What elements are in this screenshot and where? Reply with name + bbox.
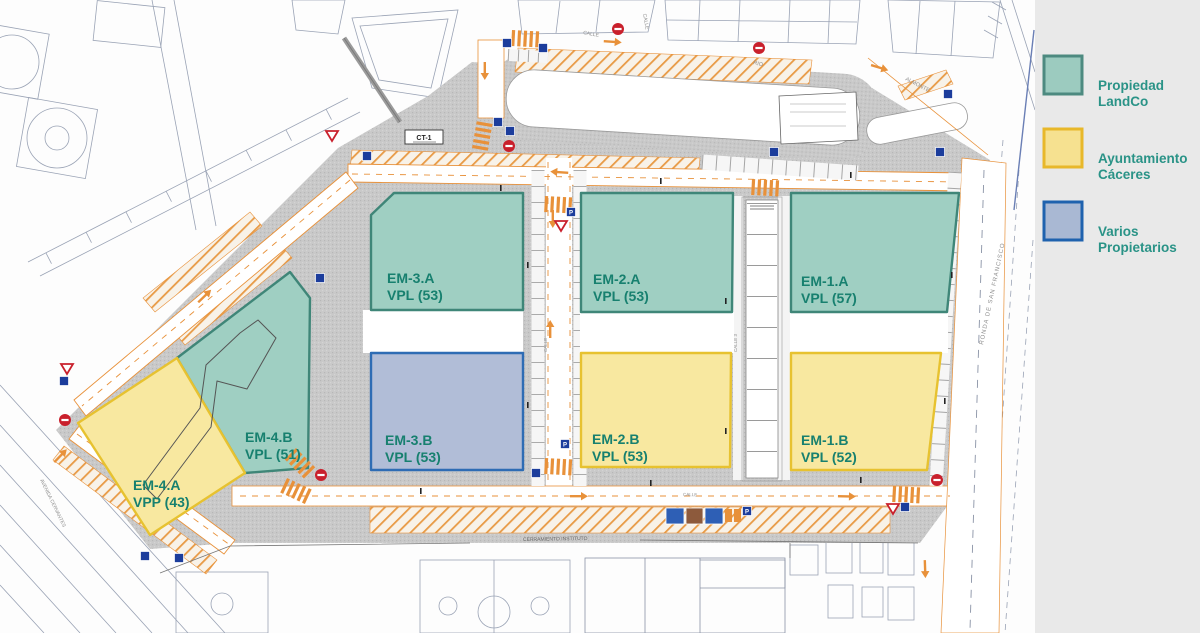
sign-icon <box>901 503 910 512</box>
street-label: CALLE <box>641 13 650 30</box>
sign-icon <box>503 39 512 48</box>
yield-sign-icon <box>326 131 338 141</box>
legend-label-ayuntamiento: Ayuntamiento Cáceres <box>1098 151 1200 183</box>
legend-swatch-landco <box>1042 54 1084 96</box>
street-label: CALLE 3 <box>733 333 738 352</box>
parcel-name: EM-2.A <box>593 271 640 287</box>
parcel-name: EM-4.B <box>245 429 292 445</box>
parcel-units: VPL (53) <box>387 287 443 303</box>
parcel-name: EM-3.B <box>385 432 432 448</box>
moto-spot <box>734 509 741 522</box>
sign-icon <box>936 148 945 157</box>
sign-icon <box>141 552 150 561</box>
sign-icon <box>175 554 184 563</box>
parking-sign-icon <box>567 208 576 217</box>
moto-spot <box>725 509 732 522</box>
vacant-gaps <box>363 310 948 353</box>
legend-label-varios: Varios Propietarios <box>1098 224 1200 256</box>
sign-icon <box>60 377 69 386</box>
street-label: CALLE <box>683 492 697 497</box>
sign-icon <box>506 127 515 136</box>
street-label: CALLE <box>583 30 600 39</box>
central-parking-strip <box>742 197 782 481</box>
street-label: CALLE <box>543 338 548 352</box>
school-buildings <box>176 540 914 633</box>
site-plan-map: P <box>0 0 1035 633</box>
legend-swatch-varios <box>1042 200 1084 242</box>
no-entry-sign-icon <box>931 474 943 486</box>
parcel-name: EM-1.B <box>801 432 848 448</box>
sign-icon <box>539 44 548 53</box>
parcel-name: EM-2.B <box>592 431 639 447</box>
no-entry-sign-icon <box>59 414 71 426</box>
parcel-units: VPL (53) <box>592 448 648 464</box>
parcel-units: VPL (51) <box>245 446 301 462</box>
parcel-units: VPL (53) <box>385 449 441 465</box>
legend-item-landco: Propiedad LandCo <box>1042 54 1200 96</box>
no-entry-sign-icon <box>503 140 515 152</box>
legend-label-landco: Propiedad LandCo <box>1098 78 1200 110</box>
legend-item-varios: Varios Propietarios <box>1042 200 1200 242</box>
parcel-units: VPL (53) <box>593 288 649 304</box>
reserved-spot <box>686 508 703 524</box>
community-building <box>779 92 858 144</box>
parcel-name: EM-4.A <box>133 477 180 493</box>
street-label: AVENIDA CERVANTES <box>38 478 67 529</box>
street-label: CERRAMIENTO INSTITUTO <box>523 536 588 543</box>
parking-sign-icon <box>743 507 752 516</box>
no-entry-sign-icon <box>612 23 624 35</box>
parcel-units: VPL (57) <box>801 290 857 306</box>
sign-icon <box>770 148 779 157</box>
parcel-name: EM-1.A <box>801 273 848 289</box>
parcel-units: VPP (43) <box>133 494 190 510</box>
yield-sign-icon <box>61 364 73 374</box>
legend-swatch-ayuntamiento <box>1042 127 1084 169</box>
ct1-label-box: CT-1 <box>405 130 443 144</box>
no-entry-sign-icon <box>315 469 327 481</box>
sign-icon <box>363 152 372 161</box>
handicap-spot <box>666 508 684 524</box>
parcel-units: VPL (52) <box>801 449 857 465</box>
legend-panel: Propiedad LandCo Ayuntamiento Cáceres Va… <box>1035 0 1200 633</box>
handicap-spot <box>705 508 723 524</box>
no-entry-sign-icon <box>753 42 765 54</box>
parcel-name: EM-3.A <box>387 270 434 286</box>
legend-item-ayuntamiento: Ayuntamiento Cáceres <box>1042 127 1200 169</box>
ct1-label: CT-1 <box>416 135 431 142</box>
sign-icon <box>944 90 953 99</box>
site-plan-screenshot: P <box>0 0 1200 633</box>
parking-sign-icon <box>561 440 570 449</box>
sign-icon <box>532 469 541 478</box>
sign-icon <box>494 118 503 127</box>
sign-icon <box>316 274 325 283</box>
